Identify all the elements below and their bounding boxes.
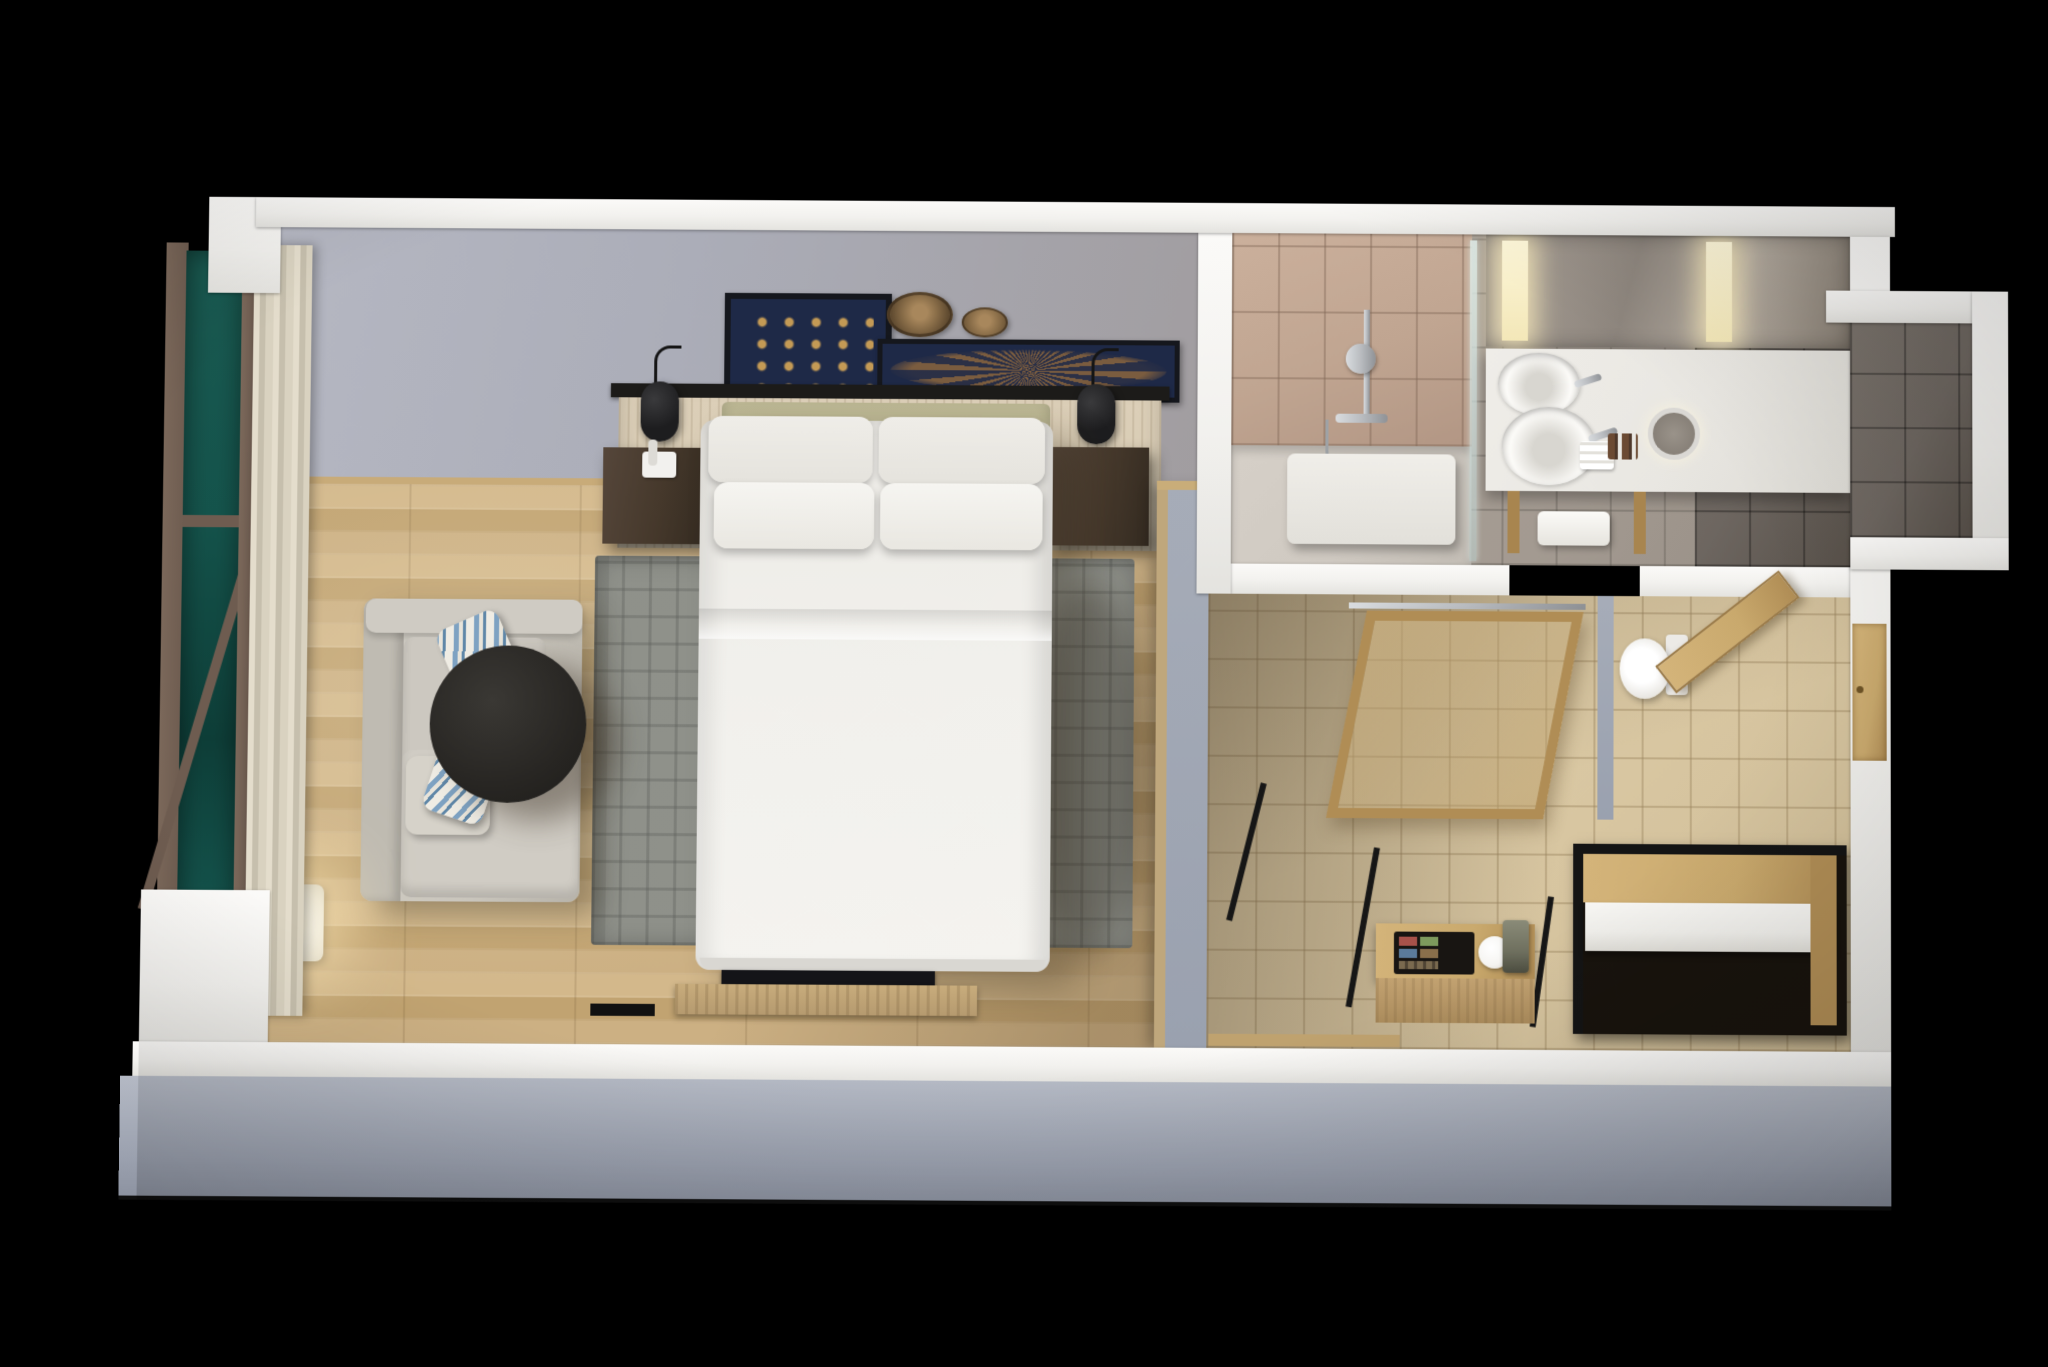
minibar-tray [1394,932,1475,975]
room [136,184,2017,1218]
tea-box-brown [1420,949,1438,958]
bottom-wall-face [118,1076,1891,1207]
duvet-fold [699,609,1052,641]
bathroom-bottom-wall-right [1640,566,1853,597]
pillow-front-left [714,482,875,549]
toilet-niche-wall [1597,596,1613,820]
bath-bench [1287,453,1456,544]
vessel-sink-upper [1498,353,1580,416]
tv-console [675,984,977,1016]
pendant-lamp-left-icon [640,381,679,441]
tea-box-blue [1399,949,1417,958]
closet-side-wood [1810,855,1836,1025]
nightstand-right [1048,447,1149,546]
vanity-leg-left [1507,491,1519,553]
woven-basket-small [962,307,1008,337]
tea-box-stack [1399,961,1438,969]
minibar-front [1376,978,1535,1024]
mirror-light-strip-right [1706,242,1732,342]
notch-floor [1850,323,1973,538]
pillow-back-right [878,417,1045,484]
window-mullion [183,515,241,527]
shower-glass-screen [1469,240,1477,561]
magnifying-mirror-icon [1648,408,1700,460]
coffee-machine [1503,920,1529,973]
sofa-back [360,598,404,901]
under-counter-towels [1538,511,1610,546]
woven-basket-large [887,292,953,337]
artwork-shells-motifs [742,307,874,387]
sliding-glass-door [1326,611,1584,820]
closet [1573,844,1847,1036]
corner-wall-bottom-left [139,889,270,1060]
tea-box-red [1399,937,1417,946]
amenity-bottles [1608,433,1638,459]
vanity-mirror [1486,235,1850,349]
telephone [642,452,676,478]
closet-back-panel [1583,854,1836,904]
pillow-back-left [708,416,873,483]
entry-door-handle-icon [1856,686,1863,693]
vanity-leg-right [1634,492,1646,554]
closet-shelf [1585,902,1835,952]
pendant-lamp-right-icon [1077,384,1115,444]
divider-wall [1196,233,1232,594]
media-slab [590,1004,655,1017]
mirror-light-strip-left [1502,241,1528,341]
shower-head-icon [1346,344,1376,374]
floor-plan-render [0,0,2048,1367]
telephone-handset [648,440,657,466]
pillow-front-right [880,483,1043,550]
tea-box-green [1420,937,1438,946]
entry-threshold [1208,1034,1399,1047]
bathroom-bottom-wall-left [1231,564,1510,596]
notch-wall-right [1972,291,2009,570]
notch-wall-bottom [1850,537,2008,570]
